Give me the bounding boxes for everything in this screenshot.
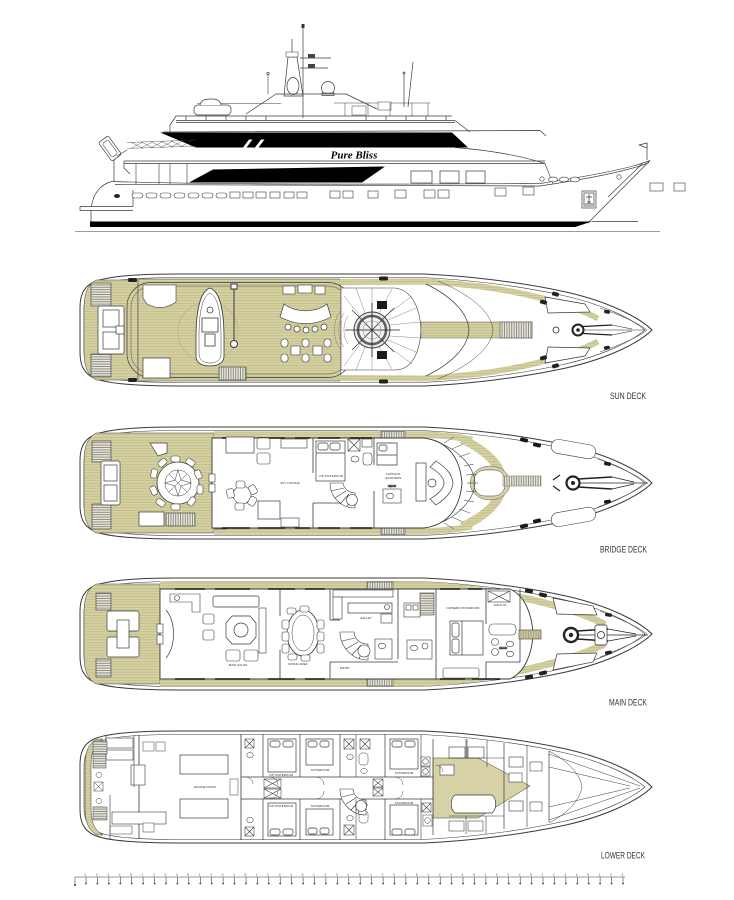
- svg-text:2: 2: [324, 873, 326, 877]
- svg-text:ENGINE ROOM: ENGINE ROOM: [194, 785, 216, 789]
- svg-text:HEAD: HEAD: [388, 484, 397, 488]
- svg-text:3: 3: [222, 873, 224, 877]
- svg-text:ENTRY: ENTRY: [340, 666, 350, 670]
- svg-text:VIP STATEROOM: VIP STATEROOM: [269, 804, 294, 808]
- svg-text:3: 3: [107, 873, 109, 877]
- svg-text:2: 2: [153, 873, 155, 877]
- svg-text:4: 4: [233, 873, 235, 877]
- svg-text:4: 4: [404, 873, 406, 877]
- svg-text:1: 1: [484, 873, 486, 877]
- svg-text:1: 1: [313, 873, 315, 877]
- svg-text:5: 5: [416, 873, 418, 877]
- svg-text:HEAD: HEAD: [499, 646, 508, 650]
- svg-text:4: 4: [519, 873, 521, 877]
- svg-text:3: 3: [393, 873, 395, 877]
- svg-text:Pure Bliss: Pure Bliss: [331, 150, 378, 162]
- svg-text:2: 2: [439, 873, 441, 877]
- svg-text:3: 3: [279, 873, 281, 877]
- svg-text:2: 2: [382, 873, 384, 877]
- svg-text:1: 1: [142, 873, 144, 877]
- svg-text:4: 4: [576, 873, 578, 877]
- svg-text:SKY LOUNGE: SKY LOUNGE: [280, 481, 299, 485]
- svg-text:STATEROOM: STATEROOM: [395, 771, 414, 775]
- svg-text:3: 3: [165, 873, 167, 877]
- svg-text:1: 1: [599, 873, 601, 877]
- svg-text:5: 5: [530, 873, 532, 877]
- svg-text:4: 4: [119, 873, 121, 877]
- svg-text:GALLEY: GALLEY: [360, 616, 372, 620]
- svg-text:2: 2: [496, 873, 498, 877]
- svg-text:3: 3: [564, 873, 566, 877]
- svg-text:MAIN DECK: MAIN DECK: [609, 698, 647, 709]
- svg-text:5: 5: [302, 873, 304, 877]
- svg-text:3: 3: [450, 873, 452, 877]
- svg-text:1: 1: [199, 873, 201, 877]
- svg-text:DINING AREA: DINING AREA: [288, 662, 307, 666]
- svg-text:1: 1: [427, 873, 429, 877]
- svg-text:3: 3: [336, 873, 338, 877]
- svg-text:QUARTERS: QUARTERS: [385, 476, 402, 480]
- svg-text:2: 2: [610, 873, 612, 877]
- svg-text:4: 4: [347, 873, 349, 877]
- svg-text:WALK-IN: WALK-IN: [494, 603, 506, 607]
- svg-text:5: 5: [587, 873, 589, 877]
- svg-text:5: 5: [187, 873, 189, 877]
- svg-text:4: 4: [290, 873, 292, 877]
- svg-text:2: 2: [267, 873, 269, 877]
- svg-text:2: 2: [96, 873, 98, 877]
- svg-text:2: 2: [553, 873, 555, 877]
- svg-text:STATEROOM: STATEROOM: [311, 768, 330, 772]
- svg-text:5: 5: [130, 873, 132, 877]
- svg-text:1: 1: [85, 873, 87, 877]
- svg-text:5: 5: [245, 873, 247, 877]
- svg-text:3: 3: [622, 873, 624, 877]
- svg-text:1: 1: [542, 873, 544, 877]
- svg-text:1: 1: [256, 873, 258, 877]
- svg-text:1: 1: [370, 873, 372, 877]
- svg-text:VIP STATEROOM: VIP STATEROOM: [319, 474, 344, 478]
- svg-text:BRIDGE DECK: BRIDGE DECK: [600, 545, 647, 556]
- svg-text:2: 2: [210, 873, 212, 877]
- svg-text:4: 4: [462, 873, 464, 877]
- svg-text:5: 5: [359, 873, 361, 877]
- svg-text:3: 3: [507, 873, 509, 877]
- svg-text:STATEROOM: STATEROOM: [395, 801, 414, 805]
- svg-text:OWNERS STATEROOM: OWNERS STATEROOM: [447, 606, 480, 610]
- svg-text:MAIN SALON: MAIN SALON: [229, 663, 248, 667]
- svg-text:VIP STATEROOM: VIP STATEROOM: [269, 773, 294, 777]
- svg-text:STATEROOM: STATEROOM: [311, 804, 330, 808]
- svg-text:5: 5: [473, 873, 475, 877]
- svg-text:4: 4: [176, 873, 178, 877]
- svg-text:SUN DECK: SUN DECK: [610, 391, 646, 402]
- svg-text:LOWER DECK: LOWER DECK: [601, 851, 645, 862]
